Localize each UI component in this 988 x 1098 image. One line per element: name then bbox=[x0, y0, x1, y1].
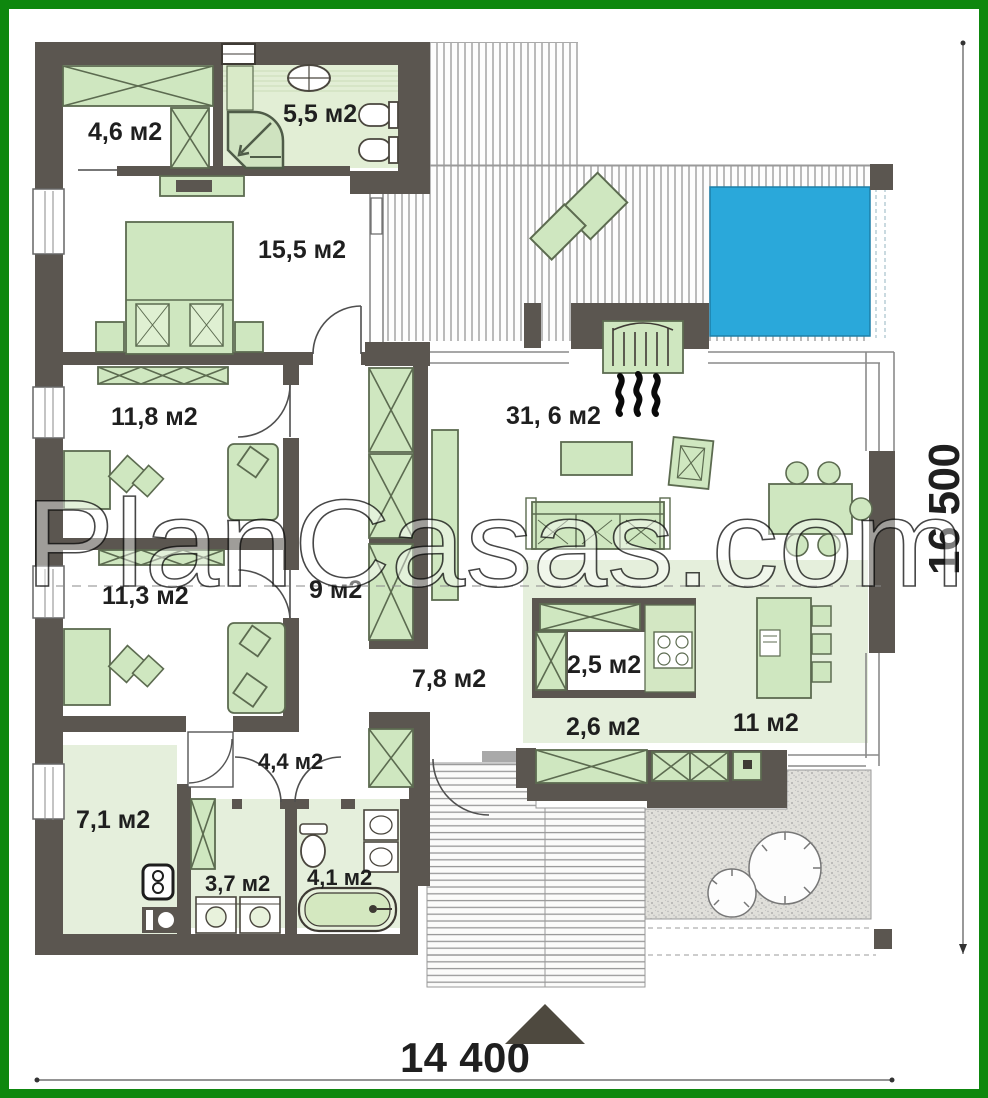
svg-text:4,6 м2: 4,6 м2 bbox=[88, 118, 162, 146]
svg-text:5,5 м2: 5,5 м2 bbox=[283, 100, 357, 128]
svg-text:15,5 м2: 15,5 м2 bbox=[258, 236, 346, 264]
svg-text:7,8 м2: 7,8 м2 bbox=[412, 665, 486, 693]
svg-text:PlanCasas.com: PlanCasas.com bbox=[25, 475, 965, 613]
svg-text:31, 6 м2: 31, 6 м2 bbox=[506, 402, 601, 430]
svg-text:2,5 м2: 2,5 м2 bbox=[567, 651, 641, 679]
svg-text:4,4 м2: 4,4 м2 bbox=[258, 749, 323, 774]
svg-text:3,7 м2: 3,7 м2 bbox=[205, 871, 270, 896]
svg-text:4,1 м2: 4,1 м2 bbox=[307, 865, 372, 890]
svg-text:2,6 м2: 2,6 м2 bbox=[566, 713, 640, 741]
svg-text:7,1 м2: 7,1 м2 bbox=[76, 806, 150, 834]
svg-text:11,8 м2: 11,8 м2 bbox=[111, 403, 198, 431]
svg-text:11 м2: 11 м2 bbox=[733, 709, 799, 737]
